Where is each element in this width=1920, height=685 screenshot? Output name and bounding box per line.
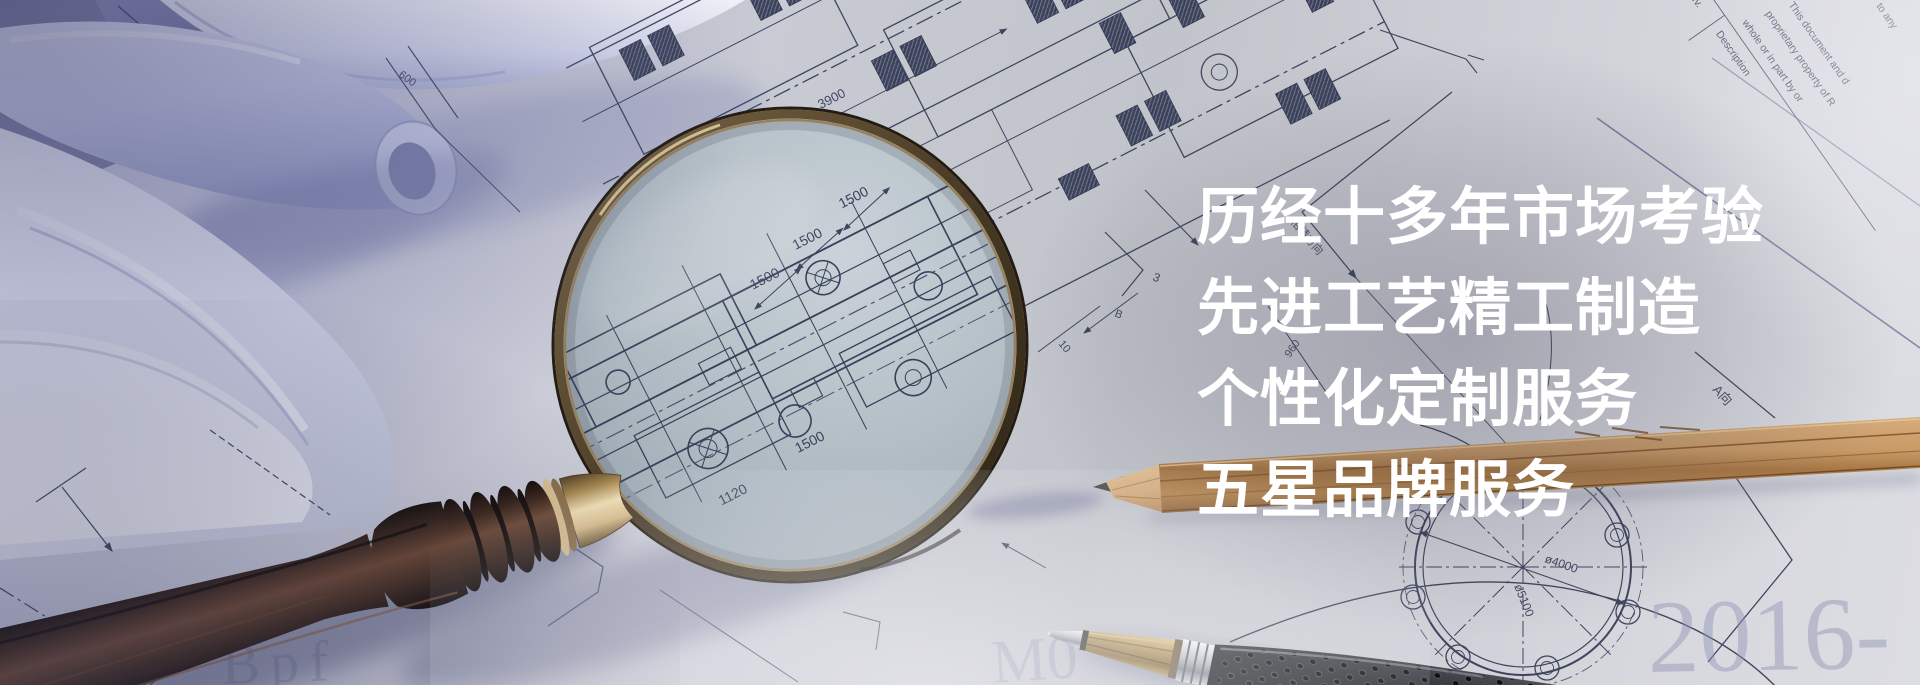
dia-4000-label: ø4000 — [1543, 552, 1580, 576]
dimension-3900: 3900 — [815, 85, 848, 111]
headline-line-3: 个性化定制服务 — [1197, 354, 1764, 445]
headline-line-4: 五星品牌服务 — [1197, 445, 1764, 536]
hero-headline: 历经十多年市场考验 先进工艺精工制造 个性化定制服务 五星品牌服务 — [1197, 172, 1764, 536]
watermark-year: 2016- — [1646, 576, 1891, 685]
label-10: 10 — [1056, 338, 1073, 355]
headline-line-1: 历经十多年市场考验 — [1197, 172, 1764, 263]
headline-line-2: 先进工艺精工制造 — [1197, 263, 1764, 354]
dia-5100-label: ø5100 — [1511, 582, 1537, 619]
pencil-tip-shadow — [966, 487, 1104, 525]
titleblock-rev: Rev. — [1683, 0, 1705, 10]
titleblock-corner: to any — [1874, 1, 1901, 32]
titleblock-description: Description — [1713, 29, 1753, 79]
pencil-cone — [1106, 464, 1165, 513]
hero-banner: B — [0, 0, 1920, 685]
label-3: 3 — [1151, 270, 1163, 286]
